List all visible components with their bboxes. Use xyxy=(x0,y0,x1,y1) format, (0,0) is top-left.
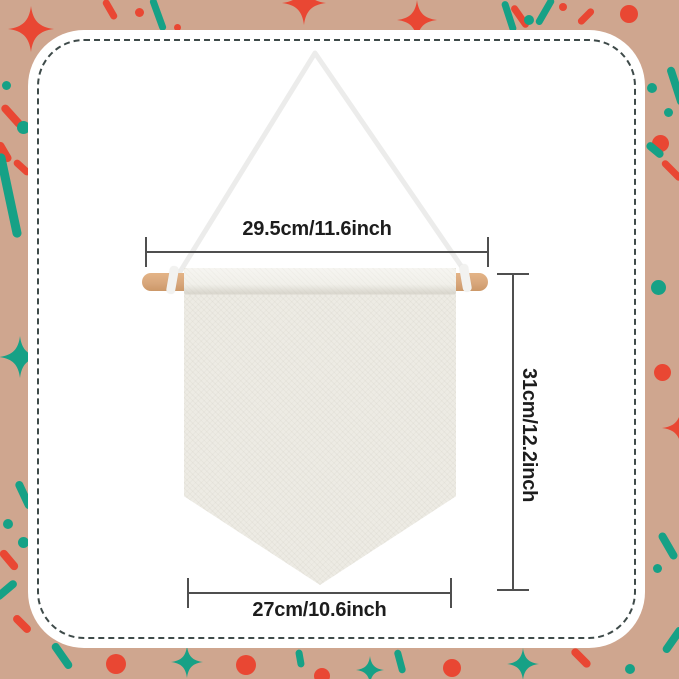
bottom-width-dimension-line xyxy=(187,592,452,594)
height-dimension-line xyxy=(512,273,514,591)
product-image: 29.5cm/11.6inch 31cm/12.2inch 27cm/10.6i… xyxy=(0,0,679,679)
height-dimension-label: 31cm/12.2inch xyxy=(517,368,540,502)
bottom-width-dimension-label: 27cm/10.6inch xyxy=(187,599,452,622)
canvas-top-sleeve xyxy=(184,268,456,295)
width-dimension-line xyxy=(145,251,489,253)
width-dimension-label: 29.5cm/11.6inch xyxy=(145,218,489,241)
